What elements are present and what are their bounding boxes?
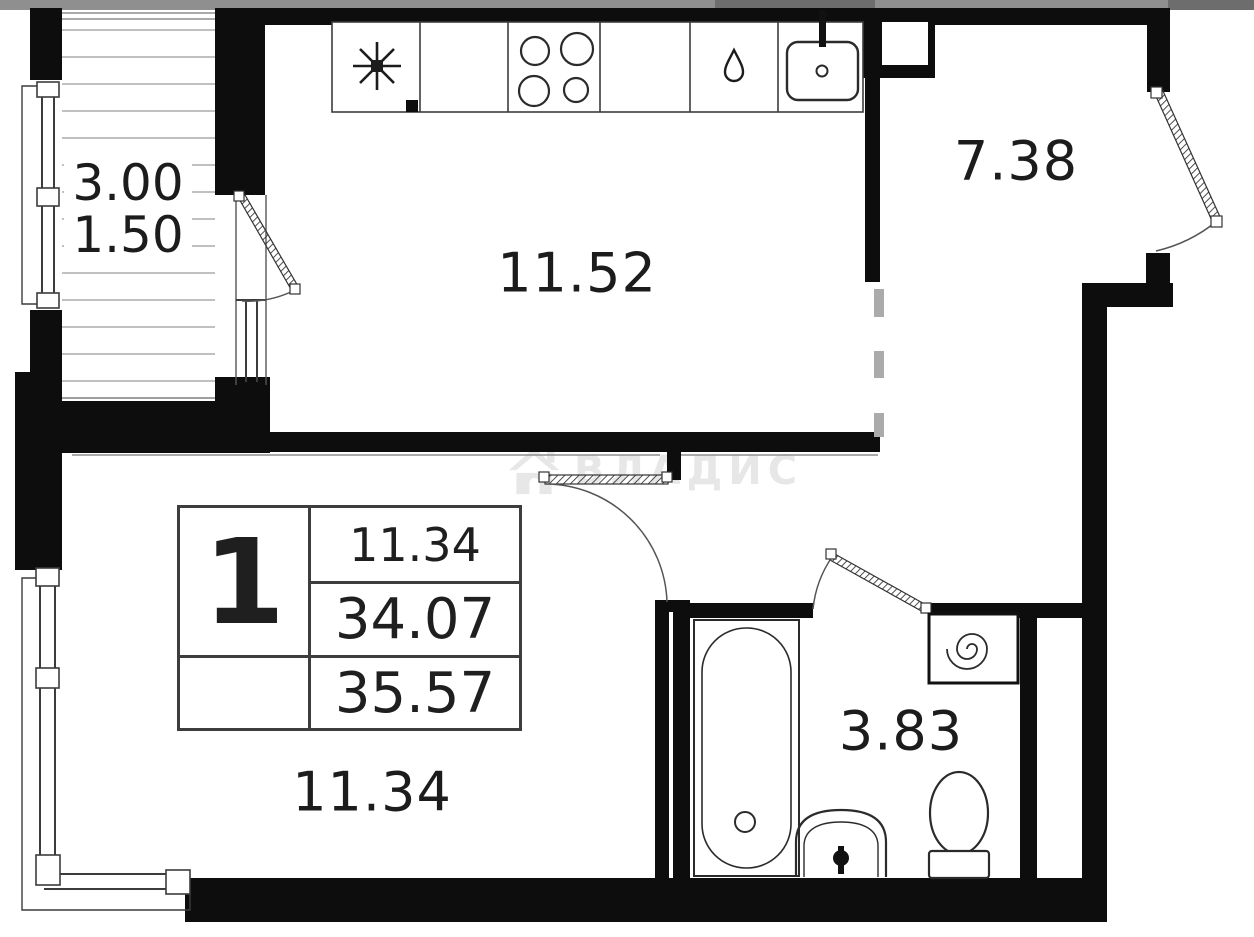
toilet: [929, 772, 989, 878]
legend-empty-cell: [180, 655, 311, 728]
open-boundary-dashed: [874, 289, 884, 437]
living-area-label: 11.34: [292, 761, 452, 824]
floor-plan: ВЛАДИС: [0, 0, 1254, 937]
bathroom-area-label: 3.83: [839, 700, 963, 763]
bathroom-sink: [796, 810, 886, 877]
legend-apartment-area: 34.07: [311, 584, 519, 655]
balcony-door: [234, 191, 300, 385]
balcony-area-labels: 3.00 1.50: [64, 150, 192, 268]
bathroom-door: [813, 549, 931, 613]
balcony-area-full: 3.00: [72, 157, 183, 210]
fridge-star-icon: [353, 42, 401, 90]
bathtub: [694, 620, 799, 876]
legend-table: 1 11.34 34.07 35.57: [177, 505, 522, 731]
vent-niche: [882, 22, 928, 65]
hall-area-label: 7.38: [954, 130, 1078, 193]
corner-window: [22, 568, 190, 910]
wall-seam: [669, 612, 673, 878]
counter-tick: [406, 100, 418, 112]
balcony-window: [22, 82, 59, 308]
living-room-door: [539, 472, 672, 602]
washing-machine: [929, 614, 1018, 683]
legend-rooms-count: 1: [180, 508, 311, 655]
kitchen-area-label: 11.52: [497, 242, 657, 305]
entrance-door: [1151, 87, 1222, 251]
legend-living-area: 11.34: [311, 508, 519, 584]
kitchen-counter: [332, 22, 863, 112]
balcony-area-reduced: 1.50: [72, 209, 183, 262]
legend-total-area: 35.57: [311, 655, 519, 728]
